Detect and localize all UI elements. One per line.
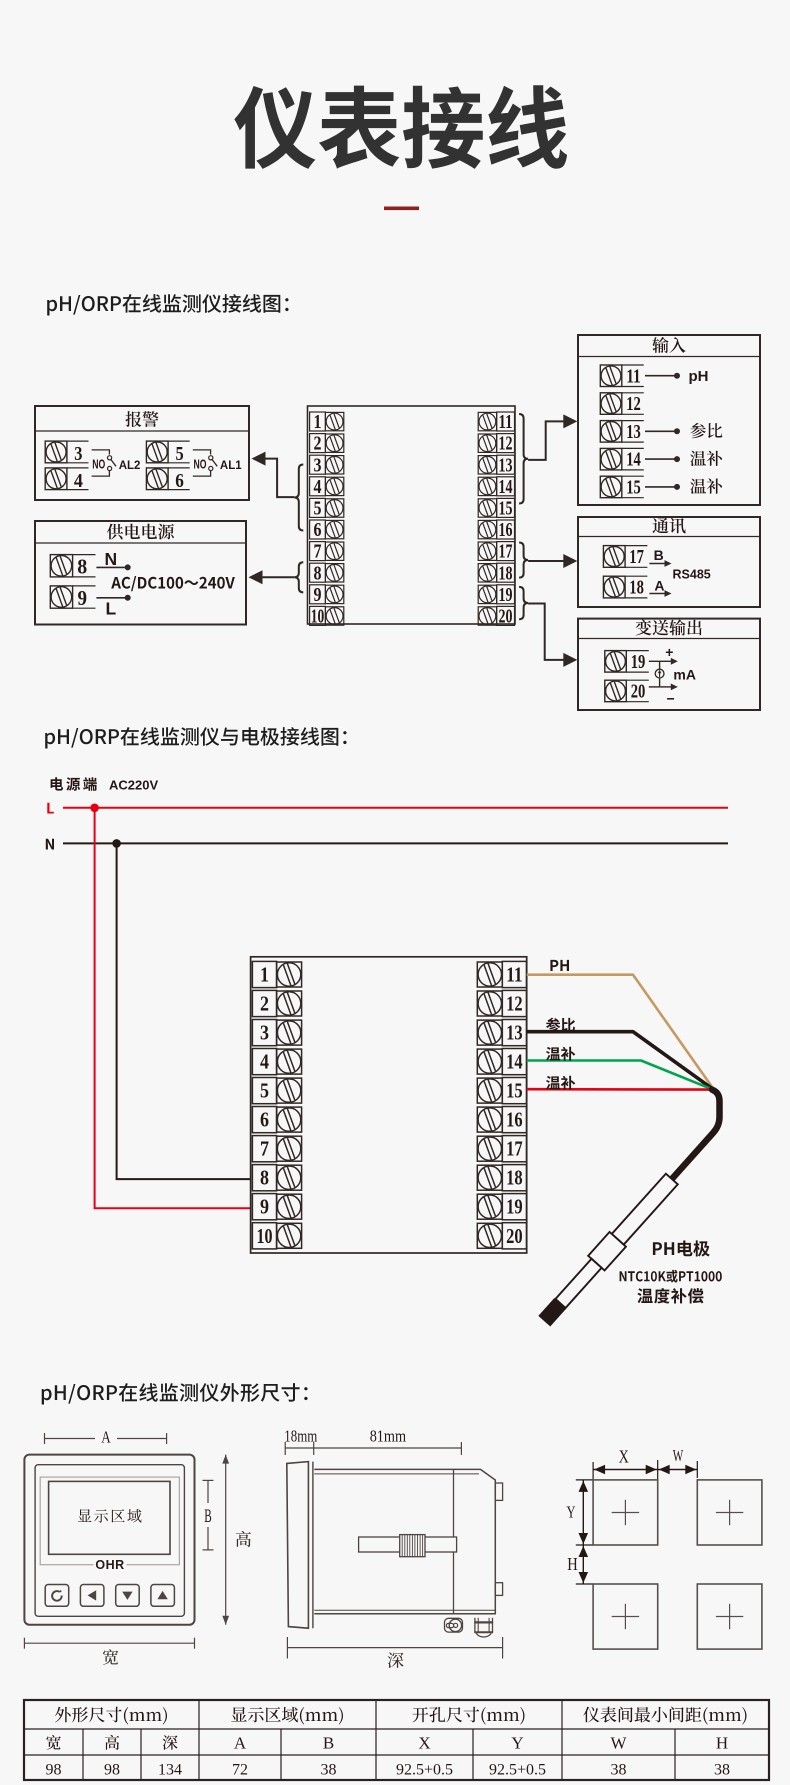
svg-text:1: 1 (260, 963, 269, 987)
svg-text:2: 2 (260, 992, 269, 1016)
svg-text:15: 15 (499, 499, 513, 520)
svg-text:81mm: 81mm (370, 1426, 406, 1445)
svg-text:20: 20 (499, 607, 513, 628)
svg-text:5: 5 (176, 443, 184, 465)
svg-text:Y: Y (567, 1503, 576, 1522)
svg-text:9: 9 (260, 1195, 269, 1219)
svg-text:OHR: OHR (95, 1558, 124, 1572)
svg-text:4: 4 (74, 470, 83, 492)
svg-text:12: 12 (626, 393, 641, 415)
svg-text:L: L (106, 599, 117, 619)
svg-text:12: 12 (506, 992, 523, 1016)
svg-text:Y: Y (511, 1734, 523, 1753)
svg-text:134: 134 (158, 1762, 182, 1779)
svg-text:38: 38 (611, 1762, 627, 1779)
svg-text:11: 11 (626, 365, 641, 387)
svg-text:AC220V: AC220V (109, 778, 158, 793)
svg-text:14: 14 (626, 449, 641, 471)
svg-text:14: 14 (506, 1050, 523, 1074)
svg-text:14: 14 (499, 477, 513, 498)
svg-text:18: 18 (499, 563, 513, 584)
svg-text:72: 72 (232, 1762, 248, 1779)
svg-text:11: 11 (499, 412, 513, 433)
svg-text:4: 4 (260, 1050, 269, 1074)
svg-text:12: 12 (499, 434, 513, 455)
svg-text:18mm: 18mm (284, 1426, 317, 1445)
svg-text:A: A (101, 1428, 111, 1447)
svg-text:38: 38 (714, 1762, 730, 1779)
svg-text:19: 19 (506, 1195, 523, 1219)
svg-text:AL1: AL1 (220, 460, 242, 472)
svg-text:15: 15 (506, 1079, 523, 1103)
svg-text:19: 19 (499, 585, 513, 606)
svg-text:AL2: AL2 (119, 460, 141, 472)
svg-text:19: 19 (631, 651, 646, 673)
svg-text:10: 10 (311, 607, 325, 628)
svg-text:H: H (716, 1734, 728, 1753)
svg-text:4: 4 (314, 477, 322, 498)
svg-text:9: 9 (314, 585, 322, 606)
svg-text:17: 17 (629, 546, 644, 568)
svg-text:3: 3 (260, 1021, 269, 1045)
svg-text:8: 8 (260, 1166, 269, 1190)
svg-text:10: 10 (257, 1224, 273, 1248)
svg-text:16: 16 (506, 1108, 523, 1132)
svg-text:20: 20 (631, 681, 646, 703)
svg-text:1: 1 (314, 412, 322, 433)
svg-text:W: W (673, 1446, 684, 1465)
svg-text:20: 20 (506, 1224, 523, 1248)
svg-text:A: A (654, 578, 664, 594)
svg-text:pH: pH (689, 368, 709, 385)
svg-text:92.5+0.5: 92.5+0.5 (489, 1762, 546, 1779)
svg-text:W: W (610, 1734, 627, 1753)
svg-text:RS485: RS485 (673, 568, 711, 582)
svg-text:17: 17 (499, 542, 513, 563)
svg-text:A: A (234, 1734, 247, 1753)
svg-text:7: 7 (314, 542, 322, 563)
svg-text:6: 6 (314, 520, 322, 541)
svg-text:3: 3 (74, 443, 82, 465)
svg-text:NO: NO (194, 458, 207, 472)
svg-text:9: 9 (78, 586, 88, 610)
svg-text:6: 6 (260, 1108, 269, 1132)
svg-text:3: 3 (314, 455, 322, 476)
svg-text:5: 5 (260, 1079, 269, 1103)
svg-text:15: 15 (626, 477, 641, 499)
svg-text:+: + (665, 644, 673, 660)
svg-text:N: N (105, 549, 118, 569)
svg-text:13: 13 (626, 421, 641, 443)
svg-text:B: B (654, 547, 664, 563)
svg-text:X: X (619, 1446, 629, 1466)
svg-text:7: 7 (260, 1137, 269, 1161)
svg-text:B: B (204, 1506, 212, 1527)
svg-text:18: 18 (506, 1166, 523, 1190)
svg-text:8: 8 (314, 563, 322, 584)
svg-text:2: 2 (314, 434, 322, 455)
svg-text:13: 13 (506, 1021, 523, 1045)
svg-text:11: 11 (506, 963, 523, 987)
svg-text:6: 6 (175, 470, 184, 492)
svg-text:18: 18 (629, 577, 644, 599)
svg-text:H: H (567, 1554, 578, 1574)
svg-text:−: − (667, 691, 675, 707)
svg-text:5: 5 (314, 499, 322, 520)
svg-text:B: B (323, 1734, 334, 1753)
svg-text:17: 17 (506, 1137, 523, 1161)
svg-text:13: 13 (499, 455, 513, 476)
svg-text:8: 8 (77, 555, 87, 579)
svg-text:16: 16 (499, 520, 513, 541)
svg-text:X: X (418, 1734, 430, 1753)
svg-text:98: 98 (46, 1762, 62, 1779)
svg-text:92.5+0.5: 92.5+0.5 (396, 1762, 453, 1779)
svg-text:98: 98 (104, 1762, 120, 1779)
svg-text:NO: NO (92, 458, 105, 472)
svg-text:mA: mA (673, 667, 696, 683)
svg-text:38: 38 (321, 1762, 337, 1779)
